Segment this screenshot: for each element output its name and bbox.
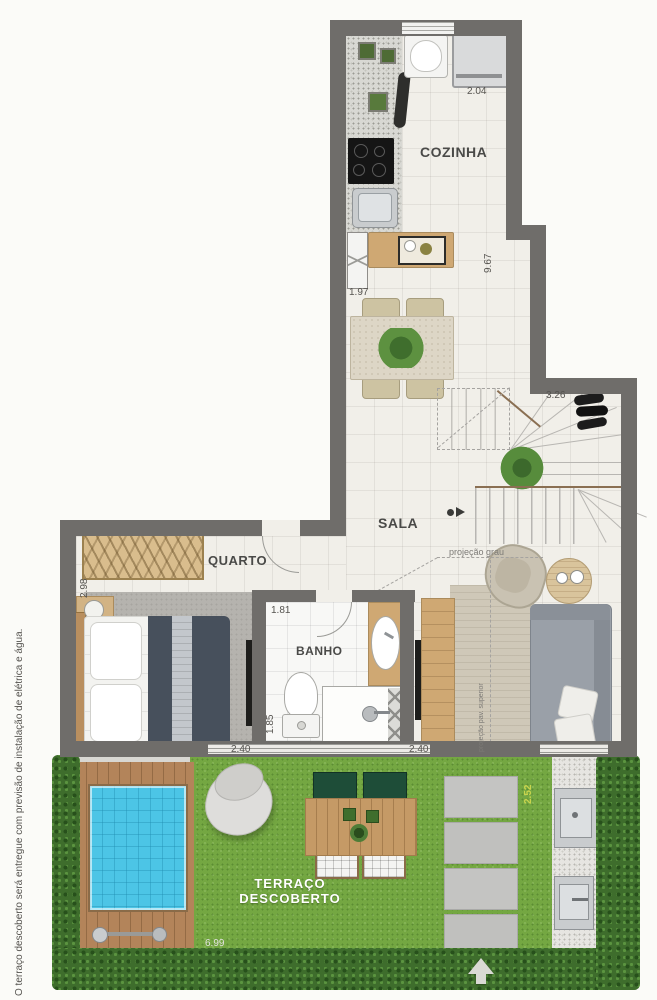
outdoor-table-pot-1: [343, 808, 356, 821]
wall-bath-right: [400, 602, 414, 741]
north-arrow-stem: [476, 974, 486, 984]
side-table: [546, 558, 592, 604]
side-table-cup-2: [570, 570, 584, 584]
dim-bedroom-depth: 2.98: [79, 568, 90, 598]
bed-pillow-2: [90, 684, 142, 742]
projection-note-vertical: projeção pav. superior: [478, 618, 485, 752]
hedge-right: [596, 755, 640, 990]
room-label-sala: SALA: [378, 515, 418, 531]
stair-shoe-2: [576, 405, 608, 417]
projection-line-horizontal: [437, 557, 543, 558]
dim-bath-width: 1.81: [271, 605, 290, 616]
laundry-tank-bowl: [410, 40, 442, 72]
plant-pot-small-2: [380, 48, 396, 64]
room-label-quarto: QUARTO: [208, 553, 267, 568]
dim-counter-width: 1.97: [349, 287, 368, 298]
tv-panel-living: [415, 640, 421, 720]
grill-knob: [572, 812, 578, 818]
cooktop-burner-4: [372, 163, 386, 177]
dim-kitchen-width: 2.04: [467, 86, 486, 97]
terrace-sink-faucet: [572, 898, 588, 901]
outdoor-bench-cushion-2: [363, 772, 407, 801]
sofa-armrest-top: [530, 604, 610, 620]
room-label-banho: BANHO: [296, 644, 343, 658]
island-tray-fruit: [420, 243, 432, 255]
dining-table-plant: [376, 328, 426, 368]
wardrobe: [82, 534, 204, 580]
dim-kitchen-length: 9.67: [483, 233, 494, 273]
cooktop-burner-1: [354, 144, 368, 158]
stair-handrail-lower: [475, 486, 621, 488]
paver-3: [444, 868, 518, 910]
toilet-bowl: [284, 672, 318, 718]
stair-mid-line-2: [540, 474, 621, 475]
projection-line-vertical: [490, 560, 491, 752]
wall-bedroom-top: [60, 520, 346, 536]
pool: [88, 784, 188, 912]
dim-terrace-width: 6.99: [205, 938, 224, 949]
outdoor-table-pot-2: [366, 810, 379, 823]
wall-bath-left: [252, 590, 266, 741]
dim-stairs-width: 3.26: [546, 390, 565, 401]
shower-head-icon: [362, 706, 378, 722]
dim-bath-depth: 1.85: [265, 698, 276, 734]
disclaimer-text: O terraço descoberto será entregue com p…: [14, 578, 25, 996]
hedge-bottom: [52, 948, 640, 990]
bath-door-opening: [316, 590, 352, 602]
north-arrow-icon: [468, 958, 494, 974]
dim-terrace-side: 2.52: [523, 768, 534, 804]
stair-plant: [500, 446, 544, 490]
terrace-glass-door-2: [540, 744, 608, 754]
terraco-line-2: DESCOBERTO: [200, 891, 380, 906]
dim-bedroom-width: 2.40: [231, 744, 250, 755]
kitchen-window: [402, 22, 454, 34]
sitting-rug: [450, 585, 534, 753]
fridge-handle: [456, 74, 502, 78]
cooktop: [348, 138, 394, 184]
room-label-terraco: TERRAÇO DESCOBERTO: [200, 876, 380, 906]
outdoor-table-plant: [350, 824, 368, 842]
wall-kitchen-left: [330, 20, 346, 536]
terrace-sink-bowl: [559, 884, 589, 920]
stair-lower-treads: [475, 488, 577, 544]
stair-projection-box: [437, 388, 510, 450]
wall-left: [60, 520, 76, 757]
stair-direction-dot: [447, 509, 454, 516]
plant-pot-small-1: [358, 42, 376, 60]
paver-4: [444, 914, 518, 952]
outdoor-shower-bar: [100, 932, 156, 936]
dim-living-width: 2.40: [409, 744, 428, 755]
wall-living-right-upper: [530, 232, 546, 388]
cooktop-burner-2: [374, 146, 385, 157]
stair-direction-icon: [456, 507, 465, 517]
plant-pot-small-3: [368, 92, 388, 112]
bedroom-door-opening: [262, 520, 300, 536]
terraco-line-1: TERRAÇO: [200, 876, 380, 891]
projection-note: projeção grau: [449, 547, 504, 557]
side-table-cup-1: [556, 572, 568, 584]
wall-kitchen-right-upper: [506, 20, 522, 232]
shaft-box: [347, 232, 368, 289]
bed-runner: [172, 616, 192, 748]
floor-plan: COZINHA SALA QUARTO BANHO TERRAÇO DESCOB…: [0, 0, 657, 1000]
outdoor-shower-head-icon: [92, 927, 108, 943]
sofa-backrest: [594, 604, 610, 752]
bath-sink: [371, 616, 400, 670]
grill-lid: [560, 798, 592, 838]
paver-2: [444, 822, 518, 864]
shower-arm: [374, 711, 390, 714]
outdoor-shower-valve: [152, 927, 167, 942]
dining-chair-bottom-1: [362, 377, 400, 399]
bed-pillow-1: [90, 622, 142, 680]
sitting-closet: [421, 598, 455, 755]
toilet-button: [297, 721, 306, 730]
room-label-cozinha: COZINHA: [420, 144, 487, 160]
paver-1: [444, 776, 518, 818]
island-tray-plate: [404, 240, 416, 252]
cooktop-burner-3: [353, 164, 365, 176]
wall-right: [621, 378, 637, 757]
stair-mid-line-1: [540, 462, 621, 463]
kitchen-sink-bowl: [358, 193, 392, 222]
fridge: [452, 32, 510, 88]
outdoor-bench-cushion-1: [313, 772, 357, 801]
